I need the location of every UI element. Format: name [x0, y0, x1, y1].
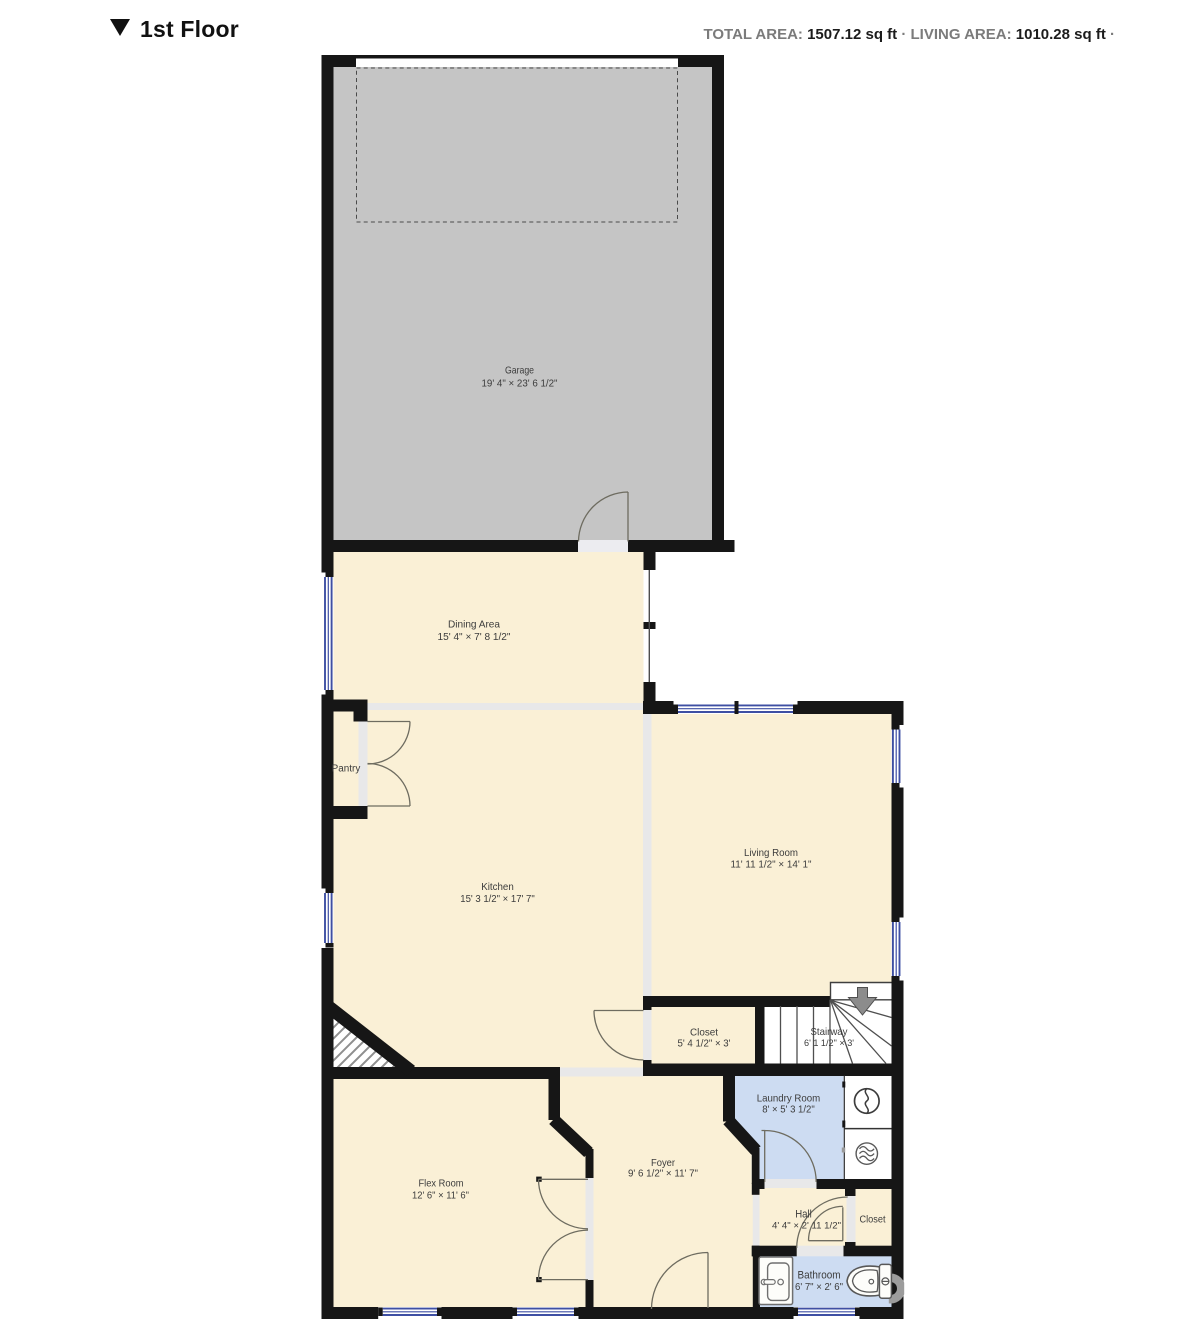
svg-text:5' 4 1/2" × 3': 5' 4 1/2" × 3': [678, 1039, 731, 1050]
svg-text:Hall: Hall: [795, 1209, 812, 1221]
svg-text:8' × 5' 3 1/2": 8' × 5' 3 1/2": [762, 1105, 815, 1116]
svg-text:Closet: Closet: [860, 1215, 886, 1226]
svg-text:Stairway: Stairway: [811, 1027, 849, 1038]
svg-text:9' 6 1/2" × 11' 7": 9' 6 1/2" × 11' 7": [628, 1168, 698, 1179]
svg-text:Pantry: Pantry: [332, 764, 361, 775]
svg-text:Closet: Closet: [690, 1028, 718, 1039]
svg-text:4' 4" × 2' 11 1/2": 4' 4" × 2' 11 1/2": [772, 1221, 841, 1231]
svg-text:Living Room: Living Room: [744, 848, 798, 859]
svg-text:Flex Room: Flex Room: [419, 1179, 464, 1190]
svg-text:6' 7" × 2' 6": 6' 7" × 2' 6": [795, 1282, 844, 1293]
svg-text:15' 4" × 7' 8 1/2": 15' 4" × 7' 8 1/2": [438, 632, 511, 643]
svg-text:15' 3 1/2" × 17' 7": 15' 3 1/2" × 17' 7": [460, 894, 535, 905]
svg-text:11' 11 1/2" × 14' 1": 11' 11 1/2" × 14' 1": [731, 859, 812, 870]
svg-text:12' 6" × 11' 6": 12' 6" × 11' 6": [412, 1191, 469, 1202]
svg-text:Laundry Room: Laundry Room: [757, 1094, 821, 1105]
svg-text:6' 1 1/2" × 3': 6' 1 1/2" × 3': [804, 1038, 854, 1049]
svg-text:Dining Area: Dining Area: [448, 620, 500, 631]
svg-text:Garage: Garage: [505, 366, 534, 377]
svg-text:Kitchen: Kitchen: [481, 882, 514, 893]
svg-text:Bathroom: Bathroom: [798, 1270, 841, 1282]
svg-text:19' 4" × 23' 6 1/2": 19' 4" × 23' 6 1/2": [482, 379, 558, 390]
